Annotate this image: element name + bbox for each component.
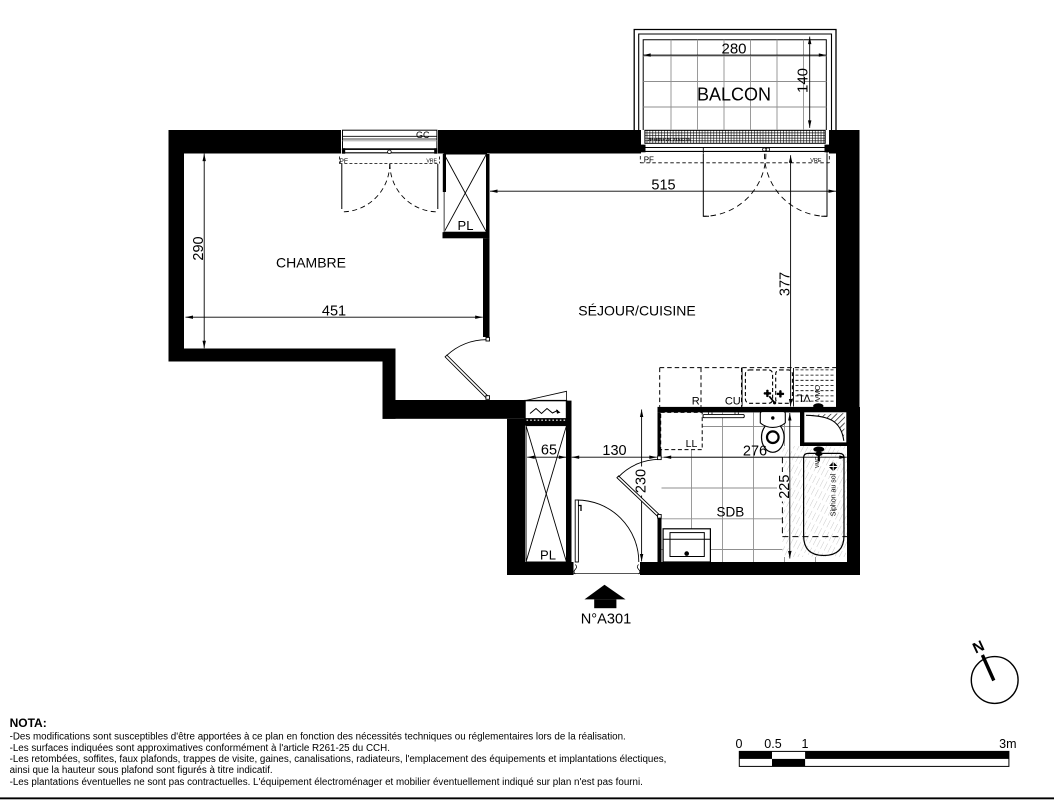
- svg-text:L: L: [797, 392, 803, 404]
- svg-text:V: V: [803, 392, 811, 404]
- svg-text:NOTA:: NOTA:: [10, 716, 47, 730]
- svg-text:R: R: [692, 396, 700, 408]
- svg-text:377: 377: [777, 272, 793, 296]
- svg-text:SDB: SDB: [717, 505, 745, 520]
- svg-text:LL: LL: [686, 438, 698, 450]
- svg-text:280: 280: [721, 41, 746, 58]
- svg-text:N°A301: N°A301: [581, 611, 631, 627]
- svg-text:-Les plantations éventuelles n: -Les plantations éventuelles ne sont pas…: [10, 777, 643, 788]
- svg-text:-Des modifications sont suscep: -Des modifications sont susceptibles d'ê…: [10, 731, 626, 742]
- svg-text:230: 230: [634, 469, 650, 493]
- svg-text:451: 451: [322, 304, 346, 320]
- svg-text:3m: 3m: [999, 737, 1016, 751]
- svg-text:290: 290: [191, 236, 207, 260]
- svg-text:515: 515: [651, 177, 675, 193]
- svg-text:VMC: VMC: [815, 385, 822, 401]
- svg-text:130: 130: [602, 443, 626, 459]
- svg-text:-Les surfaces indiquées sont a: -Les surfaces indiquées sont approximati…: [10, 743, 390, 754]
- svg-text:VMC: VMC: [815, 457, 821, 469]
- svg-text:1: 1: [802, 737, 809, 751]
- svg-text:0.5: 0.5: [764, 737, 781, 751]
- svg-text:-Les retombées, soffites, faux: -Les retombées, soffites, faux plafonds,…: [10, 754, 667, 765]
- svg-text:65: 65: [541, 442, 557, 458]
- svg-text:Siphon au sol: Siphon au sol: [831, 473, 838, 516]
- svg-text:GC: GC: [416, 130, 430, 140]
- svg-text:ainsi que la hauteur sous plaf: ainsi que la hauteur sous plafond sont f…: [10, 765, 273, 776]
- svg-text:140: 140: [795, 68, 812, 93]
- svg-text:PL: PL: [540, 548, 556, 563]
- svg-text:2P+BN+VR 215x215: 2P+BN+VR 215x215: [648, 137, 692, 142]
- svg-text:0: 0: [736, 737, 743, 751]
- svg-text:276: 276: [743, 443, 767, 459]
- svg-text:PL: PL: [458, 218, 474, 233]
- svg-text:SÉJOUR/CUISINE: SÉJOUR/CUISINE: [578, 303, 695, 319]
- svg-text:CU: CU: [725, 396, 741, 408]
- svg-text:BALCON: BALCON: [697, 85, 771, 105]
- svg-text:CHAMBRE: CHAMBRE: [276, 255, 346, 271]
- svg-text:225: 225: [777, 475, 793, 499]
